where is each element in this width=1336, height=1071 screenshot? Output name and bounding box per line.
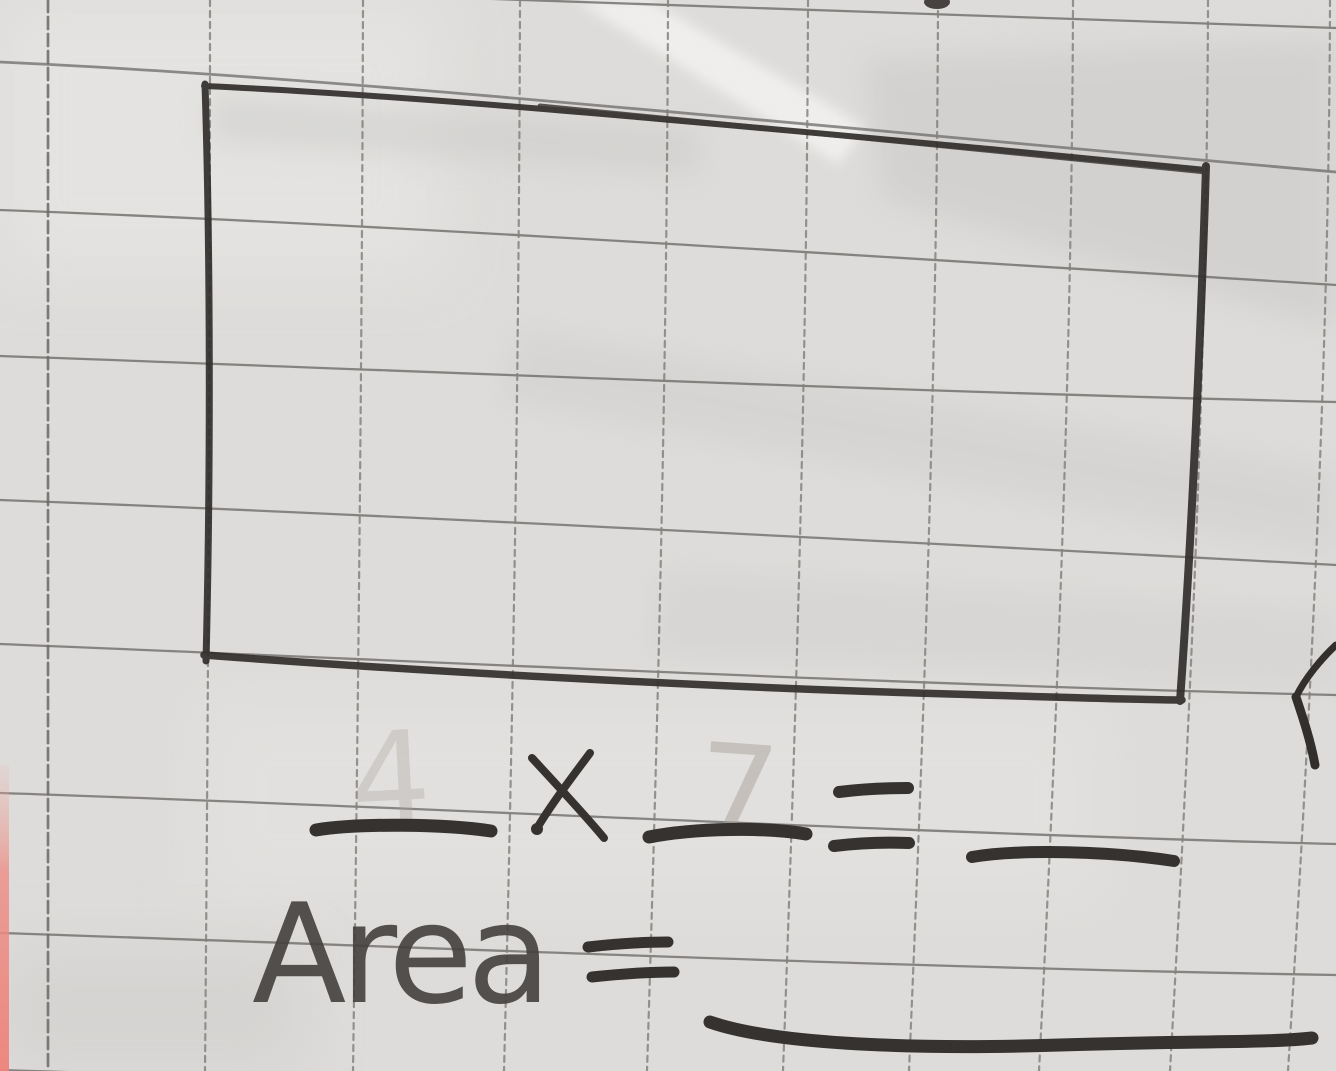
factor2-blank-line (649, 829, 806, 837)
equals-top-dash (839, 788, 908, 792)
worksheet-canvas: 4 7 Area (0, 0, 1336, 1071)
area-label: Area (252, 874, 546, 1035)
pencil-blob (531, 823, 543, 835)
worksheet-photo: 4 7 Area (0, 0, 1336, 1071)
equals-bottom-dash (592, 972, 674, 977)
equals-bottom-dash (834, 843, 909, 846)
equals-top-dash (588, 942, 668, 947)
ghost-digit-7: 7 (692, 716, 784, 870)
paper-light-equation-zone (200, 700, 1100, 900)
pink-paper-edge (0, 765, 9, 1071)
factor1-blank-line (316, 825, 491, 831)
